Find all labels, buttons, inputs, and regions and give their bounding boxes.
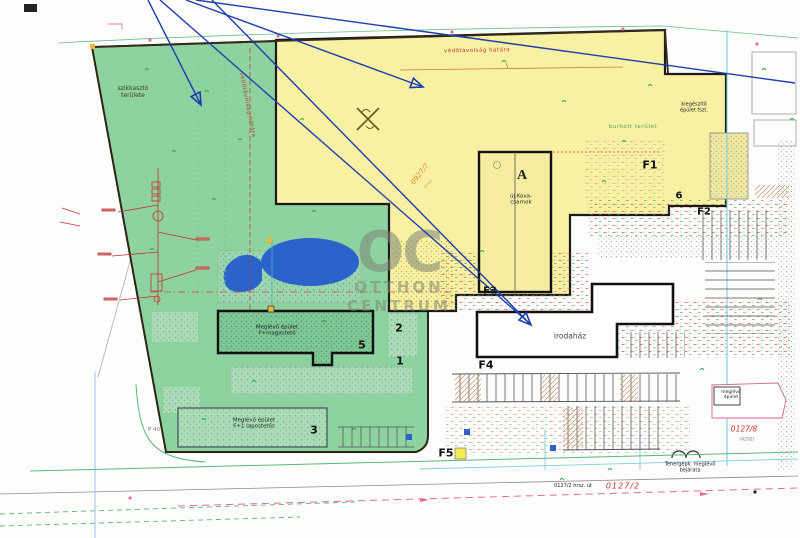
site-plan: OC OTTHON CENTRUM szikkasztó területe vé… [0, 0, 800, 538]
annotation-arrows [0, 0, 800, 538]
